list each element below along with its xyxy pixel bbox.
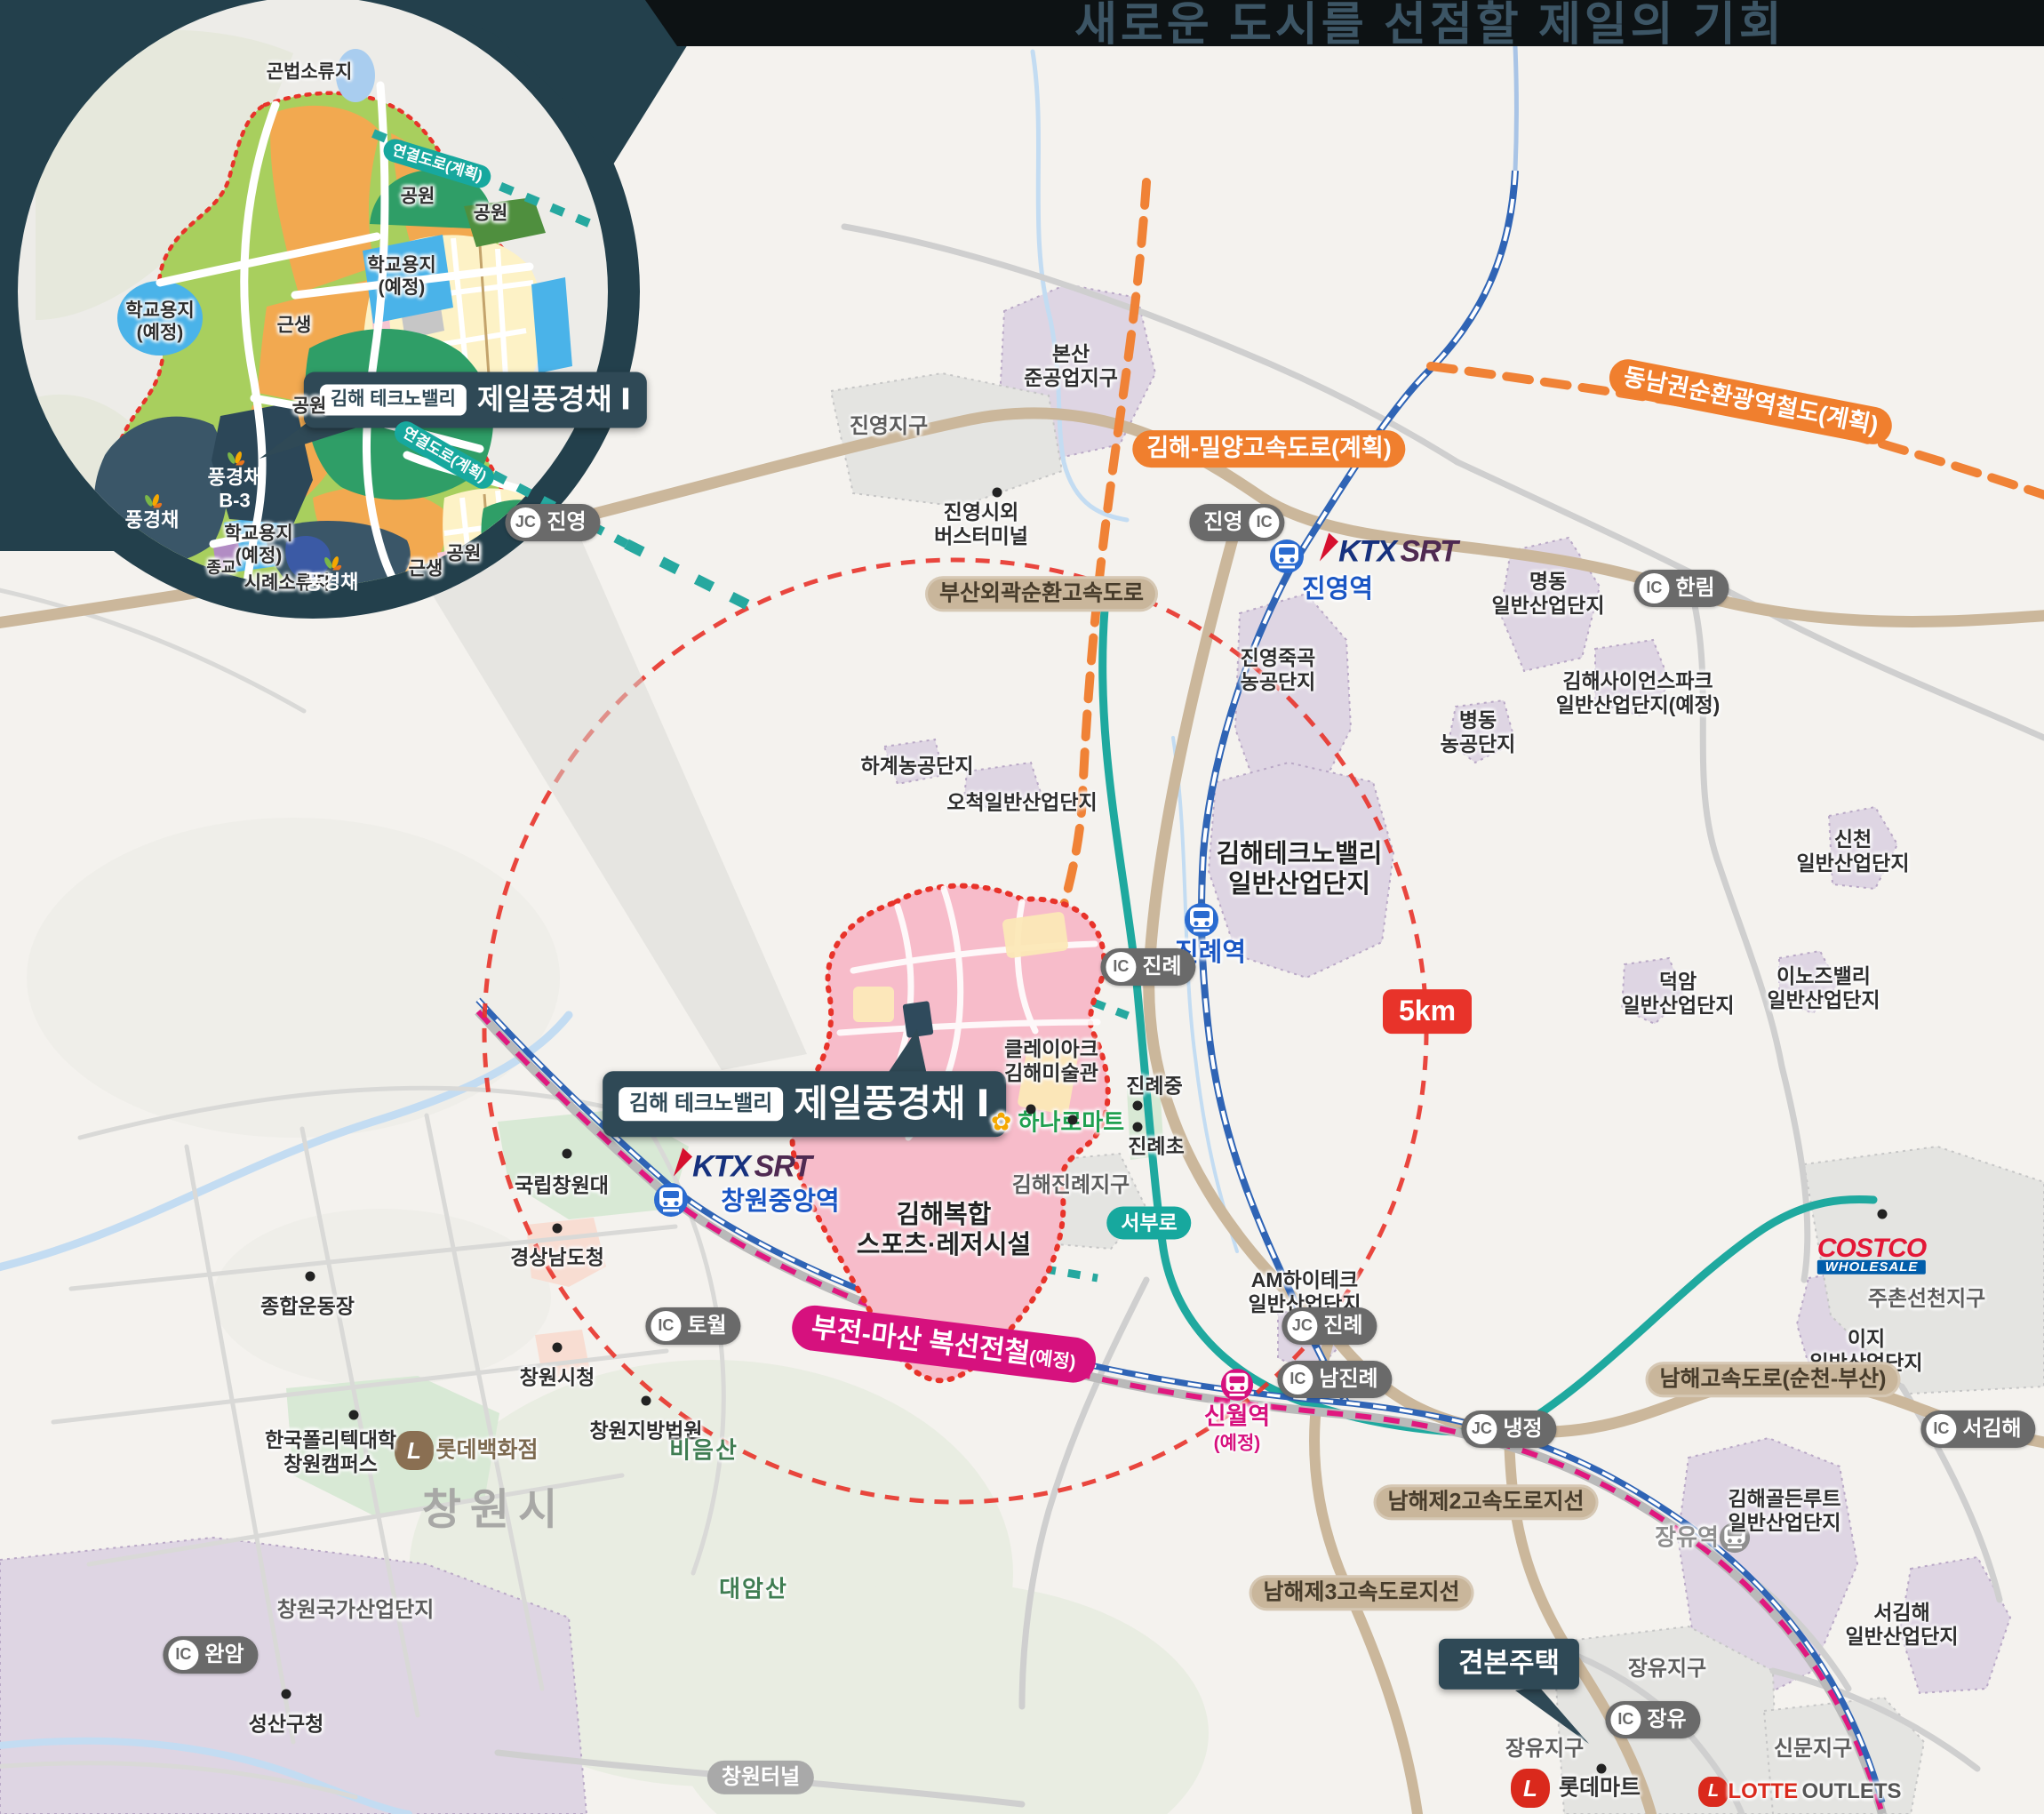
sample-house-callout: 견본주택 [1439, 1639, 1579, 1690]
ic-name: 진영 [1203, 510, 1242, 535]
lotte-mart-icon: L [1511, 1769, 1550, 1808]
inset-label-pgc-b3: 풍경채B-3 [208, 450, 262, 513]
label-line: 신문지구 [1774, 1737, 1852, 1762]
label-line: 김해테크노밸리 [1217, 839, 1383, 869]
label-line: 김해진례지구 [1012, 1173, 1130, 1198]
train-icon [1184, 902, 1219, 938]
map-pill-busan-outer-ring-exwy: 부산외곽순환고속도로 [925, 576, 1158, 611]
inset-label-park-ur: 공원 [474, 204, 508, 226]
inset-label-pgc-bottom: 풍경채 [305, 555, 359, 595]
label-line: AM하이테크 [1249, 1268, 1361, 1292]
map-label-stadium: 종합운동장 [260, 1294, 355, 1318]
map-pill-changwon-tunnel: 창원터널 [707, 1761, 814, 1794]
poi-dot [553, 1224, 563, 1234]
callout-tag: 김해 테크노밸리 [320, 385, 467, 416]
ic-circle: IC [1250, 507, 1280, 538]
map-label-bonsan: 본산준공업지구 [1024, 342, 1118, 390]
label-line: 명동 [1492, 570, 1605, 594]
label-line: 오척일반산업단지 [946, 790, 1097, 814]
label-line: 학교용지 [125, 300, 194, 323]
label-line: 공원 [292, 396, 327, 419]
map-label-deogam: 덕암일반산업단지 [1622, 970, 1735, 1018]
label-line: 종합운동장 [260, 1294, 355, 1318]
poi-dot [1597, 1764, 1607, 1774]
inset-label-park-right: 공원 [447, 544, 482, 566]
rail-pill-text: 부전-마산 복선전철 [810, 1312, 1032, 1370]
map-label-innoz-valley: 이노즈밸리일반산업단지 [1768, 964, 1880, 1012]
label-line: B-3 [208, 490, 262, 513]
label-line: 곤법소류지 [267, 62, 353, 84]
poi-dot [1133, 1123, 1143, 1132]
inset-label-geunsaeng-b: 근생 [409, 559, 443, 581]
label-line: 학교용지 [367, 255, 435, 277]
interchange-jc-jinyeong: JC진영 [505, 504, 600, 541]
label-line: 공원 [474, 204, 508, 226]
ic-name: 진례 [1323, 1314, 1362, 1339]
map-label-polytech: 한국폴리텍대학창원캠퍼스 [265, 1428, 396, 1476]
label-line: 진영시외 [934, 500, 1028, 524]
label-line: 일반산업단지 [1797, 851, 1910, 875]
label-line: 경상남도청 [510, 1245, 604, 1269]
poi-dot-dot-costco [1878, 1210, 1888, 1219]
lotte-brand-text: LOTTE [1728, 1779, 1798, 1803]
ic-name: 완암 [204, 1642, 244, 1667]
map-label-ocheok: 오척일반산업단지 [946, 790, 1097, 814]
station-jangyu: 장유역 [1655, 1524, 1719, 1552]
map-label-sincheon: 신천일반산업단지 [1797, 827, 1910, 875]
map-pill-namhae-3rd-branch: 남해제3고속도로지선 [1250, 1575, 1474, 1610]
poi-dot [306, 1272, 315, 1282]
label-line: 일반산업단지 [1729, 1511, 1841, 1535]
label-line: 창원국가산업단지 [277, 1598, 435, 1623]
ic-name: 서김해 [1962, 1417, 2021, 1442]
map-pill-seoburo: 서부로 [1106, 1206, 1191, 1239]
label-line: 버스터미널 [934, 524, 1028, 548]
label-line: (예정) [367, 277, 435, 300]
label-line: 종교 [206, 558, 236, 577]
ic-name: 진례 [1142, 955, 1181, 979]
poi-dot [553, 1343, 563, 1353]
ic-name: 냉정 [1503, 1417, 1542, 1442]
radius-5km-badge: 5km [1383, 989, 1472, 1034]
srt-logo-text: SRT [1401, 534, 1457, 568]
label-line: 준공업지구 [1024, 366, 1118, 390]
map-label-myeongdong: 명동일반산업단지 [1492, 570, 1605, 618]
label-line: 한국폴리텍대학 [265, 1428, 396, 1452]
interchange-jc-naengjeong: JC냉정 [1461, 1410, 1556, 1448]
map-label-jangyu-district2: 장유지구 [1505, 1737, 1584, 1762]
map-label-city-hall: 창원시청 [520, 1365, 595, 1389]
label-line: (예정) [125, 323, 194, 345]
ic-circle: IC [168, 1640, 198, 1670]
map-pill-namhae-exwy: 남해고속도로(순천-부산) [1646, 1362, 1901, 1397]
label-line: 스포츠·레저시설 [857, 1230, 1031, 1260]
ic-circle: JC [1287, 1311, 1317, 1341]
label-line: 성산구청 [249, 1712, 324, 1736]
label-line: 일반산업단지 [1217, 869, 1383, 899]
sprout-icon [320, 555, 343, 571]
lotte-outlets-label: LOTTE OUTLETS [1728, 1779, 1901, 1804]
station-sinwol-sub: (예정) [1214, 1434, 1261, 1454]
map-label-jangyu-district1: 장유지구 [1628, 1657, 1706, 1682]
lotte-dept-label: 롯데백화점 [435, 1437, 538, 1464]
location-map: 새로운 도시를 선점할 제일의 기회 김해 테크노밸리 제일풍경채 Ⅰ 김해 테… [0, 0, 2044, 1814]
inset-label-park-center: 공원 [292, 396, 327, 419]
map-label-changwon-national-complex: 창원국가산업단지 [277, 1598, 435, 1623]
map-label-jukgok: 진영죽곡농공단지 [1241, 646, 1316, 694]
ic-circle: JC [510, 507, 540, 538]
interchange-ic-jangyu: IC장유 [1605, 1701, 1700, 1738]
inset-pill-link-road-top: 연결도로(계획) [380, 136, 493, 191]
ic-circle: IC [1282, 1364, 1313, 1394]
interchange-jc-jinrye: JC진례 [1281, 1307, 1377, 1345]
srt-logo-text: SRT [755, 1149, 811, 1183]
lotte-mart-label: 롯데마트 [1559, 1775, 1641, 1802]
label-line: 공원 [401, 187, 435, 209]
ic-name: 진영 [547, 510, 586, 535]
label-line: 주촌선천지구 [1868, 1287, 1985, 1312]
label-line: 대암산 [719, 1576, 788, 1603]
label-line: 공원 [447, 544, 482, 566]
ic-circle: IC [651, 1311, 681, 1341]
station-sinwol-name: 신월역 [1204, 1403, 1271, 1430]
label-line: 일반산업단지 [1846, 1625, 1959, 1649]
ic-circle: IC [1926, 1414, 1956, 1444]
map-label-clayarch: 클레이아크김해미술관 [1004, 1037, 1098, 1085]
interchange-ic-wanam: IC완암 [163, 1636, 258, 1674]
label-line: 이지 [1810, 1327, 1923, 1351]
label-line: 덕암 [1622, 970, 1735, 994]
label-line: 이노즈밸리 [1768, 964, 1880, 988]
hanaro-flower-icon: ✿ [991, 1107, 1011, 1135]
train-icon [653, 1182, 689, 1218]
map-label-seogimhae-complex: 서김해일반산업단지 [1846, 1601, 1959, 1649]
map-label-sports-leisure: 김해복합스포츠·레저시설 [857, 1200, 1031, 1260]
label-line: 김해복합 [857, 1200, 1031, 1230]
map-label-daeamsan: 대암산 [719, 1576, 788, 1603]
callout-name: 제일풍경채 Ⅰ [794, 1082, 990, 1126]
label-line: 신천 [1797, 827, 1910, 851]
ic-circle: IC [1106, 952, 1136, 982]
poi-dot [993, 488, 1002, 498]
poi-dot-dot-museum1 [1026, 1105, 1036, 1115]
label-line: 근생 [277, 316, 312, 338]
label-line: 풍경채 [125, 509, 180, 532]
label-line: 일반산업단지 [1492, 594, 1605, 618]
interchange-ic-namjinrye: IC남진례 [1277, 1361, 1392, 1398]
station-sinwol: 신월역 (예정) [1204, 1404, 1271, 1455]
label-line: 병동 [1441, 708, 1516, 732]
label-line: 본산 [1024, 342, 1118, 366]
label-layer: 김해 테크노밸리 제일풍경채 Ⅰ 김해 테크노밸리 제일풍경채 Ⅰ 견본주택 5… [0, 0, 2044, 1814]
inset-label-gonbeop-pond: 곤법소류지 [267, 62, 353, 84]
interchange-ic-hallim: IC한림 [1633, 570, 1729, 607]
map-label-provincial-office: 경상남도청 [510, 1245, 604, 1269]
costco-logo: COSTCO WHOLESALE [1817, 1236, 1926, 1275]
map-label-juchon: 주촌선천지구 [1868, 1287, 1985, 1312]
costco-wholesale-text: WHOLESALE [1817, 1260, 1926, 1275]
poi-dot [282, 1690, 291, 1699]
rail-pill-sub: (예정) [1028, 1347, 1077, 1373]
label-line: 일반산업단지 [1622, 994, 1735, 1018]
label-line: 농공단지 [1441, 732, 1516, 756]
poi-dot [1133, 1101, 1143, 1111]
inset-project-callout: 김해 테크노밸리 제일풍경채 Ⅰ [304, 372, 647, 428]
label-line: 풍경채 [305, 571, 359, 595]
ic-name: 토월 [687, 1314, 726, 1339]
map-pill-namhae-2nd-branch: 남해제2고속도로지선 [1374, 1484, 1599, 1520]
label-line: 하계농공단지 [861, 754, 974, 778]
train-icon [1220, 1368, 1254, 1402]
label-line: 서김해 [1846, 1601, 1959, 1625]
train-icon [1269, 539, 1305, 574]
label-line: 일반산업단지 [1768, 988, 1880, 1012]
callout-tag: 김해 테크노밸리 [619, 1087, 783, 1121]
map-project-callout: 김해 테크노밸리 제일풍경채 Ⅰ [603, 1071, 1006, 1137]
map-label-sinmun-district: 신문지구 [1774, 1737, 1852, 1762]
map-label-bus-terminal: 진영시외버스터미널 [934, 500, 1028, 548]
map-label-changwon-univ: 국립창원대 [515, 1173, 609, 1197]
interchange-ic-jinyeong: IC진영 [1189, 504, 1284, 541]
inset-label-geunsaeng-mid: 근생 [277, 316, 312, 338]
ktx-logo-text: KTX [1338, 534, 1396, 568]
inset-label-park-ul: 공원 [401, 187, 435, 209]
map-label-science-park: 김해사이언스파크일반산업단지(예정) [1556, 669, 1721, 717]
label-line: 진영지구 [850, 414, 928, 439]
label-line: 농공단지 [1241, 670, 1316, 694]
inset-pill-link-road-bottom: 연결도로(계획) [390, 417, 498, 492]
outlets-text: OUTLETS [1802, 1779, 1902, 1803]
label-line: 진영죽곡 [1241, 646, 1316, 670]
callout-name: 제일풍경채 Ⅰ [477, 383, 631, 418]
ic-name: 장유 [1647, 1707, 1686, 1732]
hanaro-mart-logo: ✿ 하나로마트 [991, 1107, 1124, 1136]
sprout-icon [140, 492, 164, 508]
ktx-srt-logo: KTX SRT [678, 1147, 811, 1184]
inset-label-jonggyo: 종교 [206, 558, 236, 577]
ic-name: 한림 [1675, 576, 1714, 601]
label-line: 창원시 [422, 1486, 566, 1537]
label-line: 클레이아크 [1004, 1037, 1098, 1061]
label-line: 진례중 [1126, 1074, 1182, 1098]
interchange-ic-jinrye: IC진례 [1100, 948, 1195, 986]
inset-label-school-r: 학교용지(예정) [367, 255, 435, 300]
map-label-changwon-city: 창원시 [422, 1486, 566, 1537]
ic-name: 남진례 [1319, 1367, 1377, 1392]
interchange-ic-seogimhae: IC서김해 [1920, 1410, 2035, 1448]
label-line: 국립창원대 [515, 1173, 609, 1197]
map-label-gimhae-technovalley-complex: 김해테크노밸리일반산업단지 [1217, 839, 1383, 899]
bujeon-masan-rail-pill: 부전-마산 복선전철(예정) [789, 1303, 1098, 1385]
ic-circle: JC [1466, 1414, 1497, 1444]
poi-dot [642, 1396, 651, 1406]
sprout-icon [223, 450, 246, 466]
map-label-jinrye-elem: 진례초 [1128, 1134, 1184, 1158]
label-line: 창원캠퍼스 [265, 1452, 396, 1476]
poi-dot [563, 1149, 572, 1159]
poi-dot-dot-museum2 [1068, 1115, 1078, 1125]
map-label-hagye: 하계농공단지 [861, 754, 974, 778]
interchange-ic-towol: IC토월 [645, 1307, 740, 1345]
map-pill-gimhae-miryang-exwy: 김해-밀양고속도로(계획) [1132, 430, 1405, 467]
ic-circle: IC [1610, 1705, 1641, 1735]
label-line: 진례초 [1128, 1134, 1184, 1158]
label-line: 장유지구 [1628, 1657, 1706, 1682]
label-line: 창원시청 [520, 1365, 595, 1389]
station-jinyeong: 진영역 [1302, 574, 1373, 604]
label-line: 일반산업단지(예정) [1556, 693, 1721, 717]
inset-label-pgc-left: 풍경채 [125, 492, 180, 532]
label-line: 학교용지 [224, 523, 292, 546]
lotte-outlets-icon: L [1698, 1777, 1729, 1807]
map-label-bieumsan: 비음산 [669, 1437, 739, 1465]
map-label-jinrye-district: 김해진례지구 [1012, 1173, 1130, 1198]
label-line: 비음산 [669, 1437, 739, 1465]
station-changwon-jungang: 창원중앙역 [721, 1187, 839, 1217]
lotte-dept-icon: L [395, 1431, 434, 1470]
ktx-srt-logo: KTX SRT [1324, 532, 1457, 569]
map-label-jinrye-mid: 진례중 [1126, 1074, 1182, 1098]
label-line: 김해미술관 [1004, 1061, 1098, 1085]
label-line: 근생 [409, 559, 443, 581]
label-line: 김해골든루트 [1729, 1487, 1841, 1511]
ic-circle: IC [1639, 573, 1669, 603]
label-line: 김해사이언스파크 [1556, 669, 1721, 693]
label-line: 장유지구 [1505, 1737, 1584, 1762]
inset-label-school-l: 학교용지(예정) [125, 300, 194, 345]
map-label-seongsan-office: 성산구청 [249, 1712, 324, 1736]
ktx-logo-text: KTX [692, 1149, 750, 1183]
label-line: 풍경채 [208, 467, 262, 490]
map-label-golden-route: 김해골든루트일반산업단지 [1729, 1487, 1841, 1535]
map-pill-se-ring-rail: 동남권순환광역철도(계획) [1606, 356, 1895, 448]
map-label-jinyeong-district: 진영지구 [850, 414, 928, 439]
poi-dot [349, 1410, 359, 1420]
map-label-byeongdong: 병동농공단지 [1441, 708, 1516, 756]
